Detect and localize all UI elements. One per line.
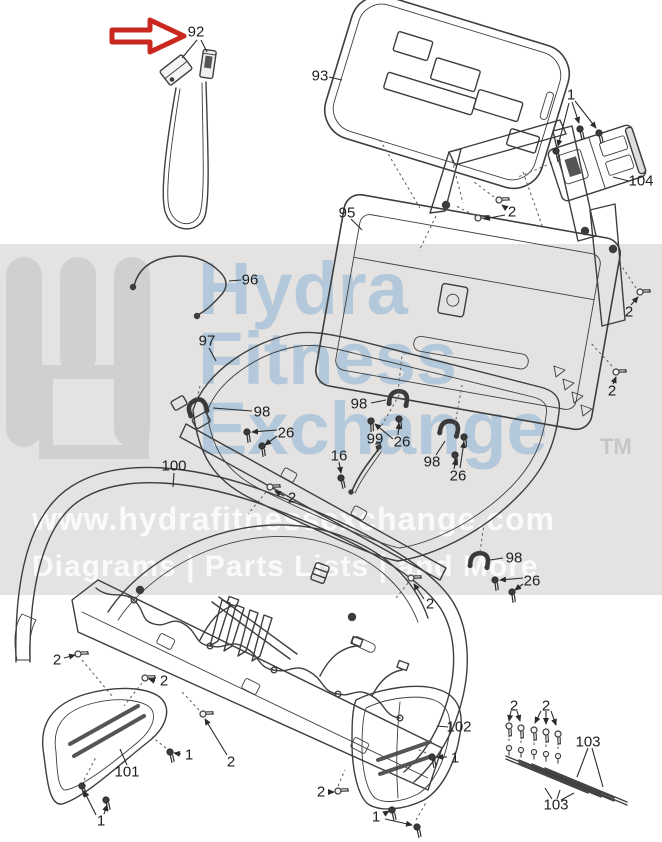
callout-96: 96: [242, 272, 259, 289]
callout-1: 1: [97, 813, 105, 830]
red-highlight-arrow: [112, 20, 184, 52]
leaders-2-console: [484, 205, 638, 384]
leader-96: [229, 280, 241, 281]
callout-2: 2: [317, 784, 325, 801]
callout-26: 26: [524, 573, 541, 590]
callout-93: 93: [312, 68, 329, 85]
diagram-line-art: [0, 0, 662, 842]
callout-26: 26: [278, 425, 295, 442]
leader-93: [329, 77, 342, 80]
callout-102: 102: [446, 719, 471, 736]
leader-97: [209, 348, 216, 361]
right-cover-102: [352, 686, 461, 809]
safety-key-92: [159, 49, 216, 229]
callout-101: 101: [114, 764, 139, 781]
tie-screws-2: [502, 722, 567, 746]
leader-104: [613, 177, 629, 181]
callout-26: 26: [450, 468, 467, 485]
tie-connectors: [506, 745, 560, 763]
callout-26: 26: [394, 434, 411, 451]
wire-loom-tree: [210, 597, 297, 661]
callout-98: 98: [254, 404, 271, 421]
callout-103: 103: [575, 734, 600, 751]
callout-98: 98: [351, 396, 368, 413]
callout-2: 2: [227, 754, 235, 771]
callout-1: 1: [372, 809, 380, 826]
frame-rail: [170, 395, 446, 580]
leader-100: [173, 473, 174, 487]
callout-104: 104: [628, 173, 653, 190]
hydra-logo-watermark: [6, 257, 150, 452]
screws-1-right: [385, 753, 441, 839]
callout-2: 2: [510, 698, 518, 715]
console-bracket: [430, 120, 596, 241]
callout-2: 2: [608, 383, 616, 400]
callout-1: 1: [567, 87, 575, 104]
callout-103: 103: [543, 797, 568, 814]
callout-2: 2: [508, 204, 516, 221]
callout-99: 99: [367, 431, 384, 448]
callout-2: 2: [625, 304, 633, 321]
callout-2: 2: [426, 596, 434, 613]
leader-1-top: [558, 101, 596, 146]
callout-100: 100: [161, 458, 186, 475]
callout-97: 97: [199, 333, 216, 350]
callout-95: 95: [339, 205, 356, 222]
wire-99: [349, 442, 381, 494]
screw-16: [334, 474, 350, 490]
callout-98: 98: [506, 550, 523, 567]
callout-1: 1: [451, 750, 459, 767]
leaders-1-left: [84, 753, 181, 815]
callout-16: 16: [331, 448, 348, 465]
leaders-1-right: [384, 757, 447, 825]
callout-2: 2: [160, 673, 168, 690]
parts-diagram-page: Hydra Fitness Exchange TM www.hydrafitne…: [0, 0, 662, 842]
callout-2: 2: [288, 490, 296, 507]
left-cover-101: [43, 688, 167, 804]
console-top-93: [317, 0, 576, 196]
callout-98: 98: [424, 454, 441, 471]
callout-92: 92: [188, 24, 205, 41]
callout-2: 2: [53, 652, 61, 669]
callout-1: 1: [185, 747, 193, 764]
callout-2: 2: [542, 698, 550, 715]
